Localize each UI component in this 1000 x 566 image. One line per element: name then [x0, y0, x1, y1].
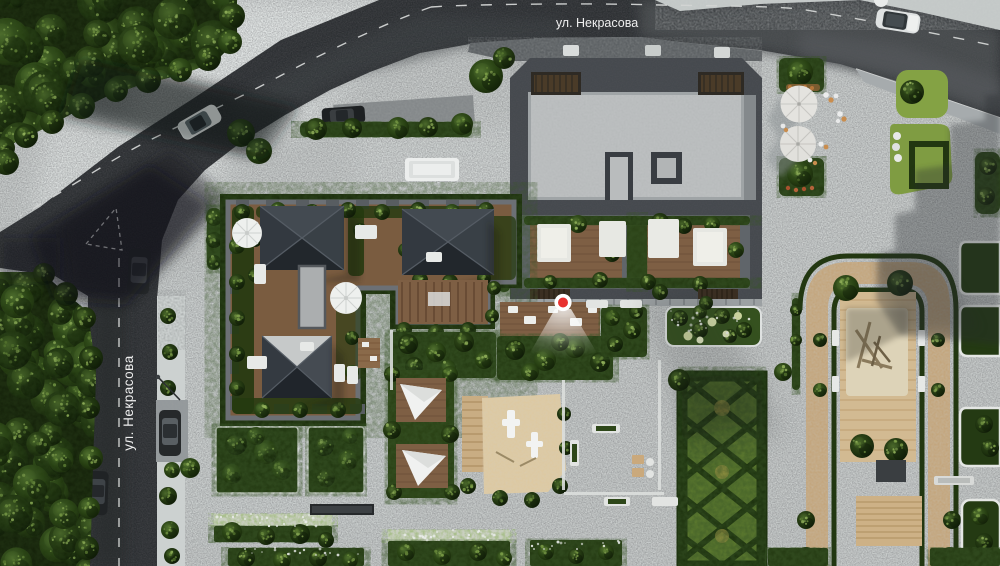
svg-text:ул. Некрасова: ул. Некрасова	[556, 16, 638, 30]
svg-text:ул. Некрасова: ул. Некрасова	[121, 355, 136, 450]
